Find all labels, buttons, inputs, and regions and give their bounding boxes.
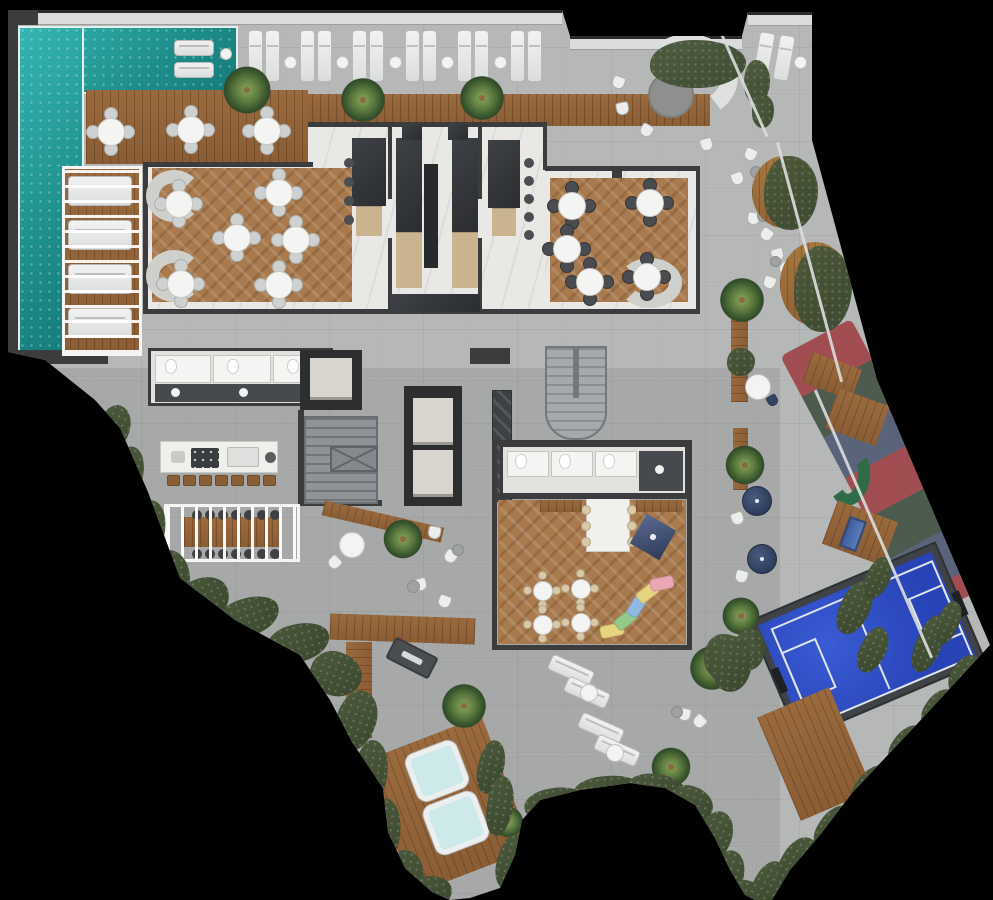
bar-stool	[524, 194, 534, 204]
dining-table	[162, 187, 194, 219]
wet-deck-lounger	[174, 40, 214, 56]
table-top	[265, 179, 293, 207]
pergola	[62, 166, 142, 356]
table-top	[167, 270, 195, 298]
plate	[265, 452, 276, 463]
wood-stool	[167, 475, 180, 486]
toilet	[165, 359, 177, 374]
table-top	[576, 268, 604, 296]
palm-tree	[380, 516, 426, 562]
sun-lounger	[772, 34, 796, 82]
dining-table	[220, 221, 252, 253]
parapet-wall	[748, 15, 812, 26]
patio-umbrella	[747, 544, 777, 574]
kitchen-counter	[396, 138, 422, 232]
kitchen-island	[424, 164, 438, 268]
side-table	[441, 56, 454, 69]
grill	[191, 448, 219, 468]
sink	[227, 447, 259, 467]
counter-base	[492, 208, 516, 236]
side-table	[452, 544, 464, 556]
wall	[545, 166, 700, 171]
cooktop	[171, 451, 185, 463]
stair-landing	[330, 446, 378, 472]
floor-plan	[0, 0, 993, 900]
wet-deck-lounger	[174, 62, 214, 78]
side-table	[389, 56, 402, 69]
cafe-table	[339, 532, 365, 558]
table-top	[177, 116, 205, 144]
sun-lounger	[317, 30, 332, 82]
table-top	[558, 192, 586, 220]
wall	[496, 494, 688, 499]
toilet	[287, 359, 299, 374]
dining-table	[550, 232, 582, 264]
parapet-wall	[8, 13, 562, 25]
wall	[143, 162, 313, 167]
dining-table	[633, 186, 665, 218]
pergola	[164, 504, 300, 562]
wood-stool	[263, 475, 276, 486]
palm-tree	[722, 442, 768, 488]
dining-table	[164, 267, 196, 299]
bar-stool	[524, 158, 534, 168]
dining-table	[630, 260, 662, 292]
kitchen-counter	[390, 294, 480, 312]
chair	[757, 225, 775, 243]
gourmet-island	[160, 441, 278, 473]
dining-table	[174, 113, 206, 145]
wall	[308, 122, 545, 127]
bar-counter	[488, 140, 520, 208]
table-top	[265, 271, 293, 299]
bar-counter	[448, 124, 468, 140]
sun-lounger	[422, 30, 437, 82]
wall	[470, 348, 510, 364]
counter-base	[356, 206, 382, 236]
elevator	[300, 350, 362, 410]
table-top	[253, 117, 281, 145]
sun-lounger	[405, 30, 420, 82]
wall	[696, 166, 700, 314]
toilet	[227, 359, 239, 374]
palm-tree	[456, 72, 508, 124]
elevator-bank	[404, 386, 462, 506]
chair	[699, 137, 715, 153]
side-table	[220, 48, 232, 60]
toilet-stall	[155, 355, 211, 383]
wall	[478, 127, 482, 199]
wood-stool	[215, 475, 228, 486]
side-table	[336, 56, 349, 69]
sink	[239, 388, 248, 397]
side-table	[770, 256, 781, 267]
table-top	[223, 224, 251, 252]
wood-stool	[247, 475, 260, 486]
bar-stool	[344, 196, 354, 206]
elevator-cab	[413, 450, 453, 497]
bar-stool	[524, 176, 534, 186]
chair	[742, 146, 759, 163]
counter-base	[452, 232, 478, 288]
sun-lounger	[369, 30, 384, 82]
palm-tree	[219, 62, 275, 118]
sun-lounger	[510, 30, 525, 82]
side-table	[606, 744, 624, 762]
counter-base	[396, 232, 422, 288]
dining-table	[250, 114, 282, 146]
table-top	[282, 226, 310, 254]
garden-bed	[150, 550, 190, 612]
dining-table	[262, 176, 294, 208]
wood-stool	[231, 475, 244, 486]
bar-counter	[352, 138, 386, 206]
chair	[729, 170, 746, 187]
side-table	[580, 684, 598, 702]
bar-stool	[344, 215, 354, 225]
side-table	[494, 56, 507, 69]
building-footprint	[0, 0, 993, 900]
table-top	[165, 190, 193, 218]
palm-tree	[438, 680, 490, 732]
wood-stool	[183, 475, 196, 486]
bar-stool	[524, 230, 534, 240]
toilet-stall	[213, 355, 271, 383]
wall	[8, 24, 18, 354]
table-top	[97, 118, 125, 146]
kitchen-counter	[452, 138, 478, 232]
elevator-cab	[413, 398, 453, 445]
wall	[543, 122, 547, 170]
palm-tree	[716, 274, 768, 326]
bar-counter	[402, 124, 422, 140]
side-table	[407, 580, 420, 593]
dining-table	[279, 223, 311, 255]
bar-stool	[344, 158, 354, 168]
garden-bed	[914, 682, 971, 742]
wall	[8, 10, 38, 25]
dining-table	[555, 189, 587, 221]
palm-tree	[337, 74, 389, 126]
wood-stool	[199, 475, 212, 486]
sun-lounger	[527, 30, 542, 82]
kids-room-walls	[492, 440, 692, 650]
side-table	[284, 56, 297, 69]
table-top	[553, 235, 581, 263]
dining-table	[573, 265, 605, 297]
bar-stool	[344, 177, 354, 187]
sun-lounger	[300, 30, 315, 82]
wall	[388, 127, 392, 199]
garden-bed	[880, 717, 942, 782]
table-top	[636, 189, 664, 217]
dining-table	[94, 115, 126, 147]
bar-stool	[524, 212, 534, 222]
main-stair	[545, 346, 607, 440]
sink	[171, 388, 180, 397]
side-table	[794, 56, 807, 69]
table-top	[633, 263, 661, 291]
patio-umbrella	[742, 486, 772, 516]
dining-table	[262, 268, 294, 300]
chair	[610, 74, 627, 91]
side-table	[671, 706, 683, 718]
